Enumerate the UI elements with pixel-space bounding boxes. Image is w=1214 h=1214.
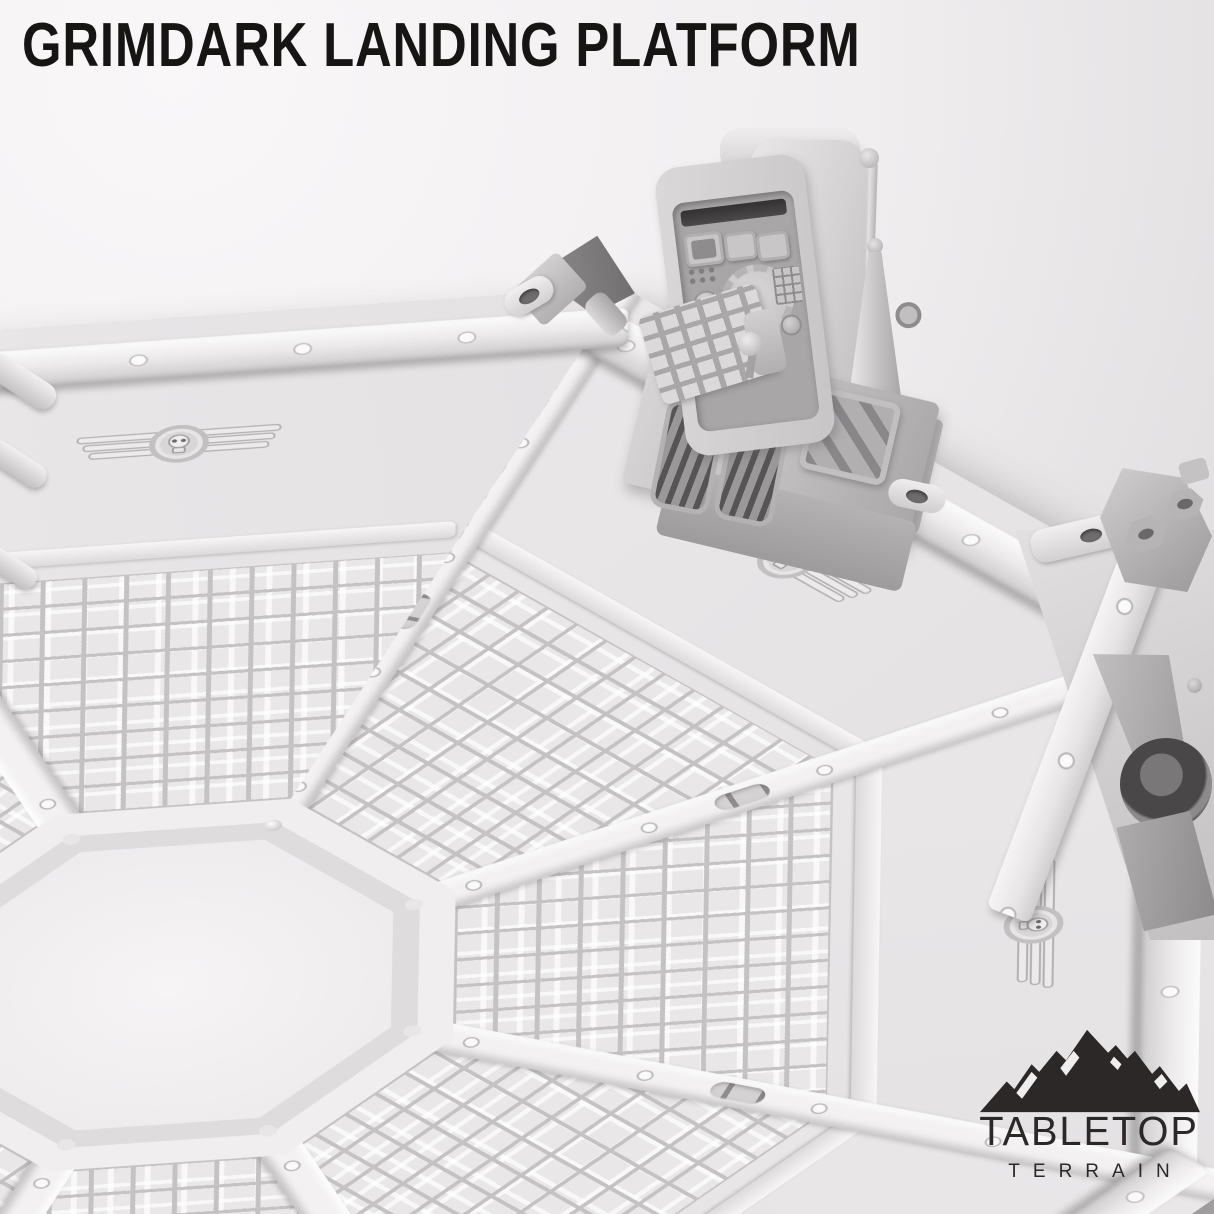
edge-clamp [1030, 460, 1214, 610]
square-button [683, 230, 725, 267]
rod-antenna-tip [859, 148, 879, 168]
bolt [1187, 678, 1202, 693]
numeric-keypad [772, 265, 803, 305]
render-stage: GRIMDARK LANDING PLATFORM TABLETOP TERRA… [0, 0, 1214, 1214]
edge-clamp-lower [1095, 620, 1214, 950]
mountain-icon [973, 1026, 1205, 1114]
clamp-knob [1178, 457, 1211, 485]
clamp-foot [1104, 800, 1214, 942]
indicator-dots [687, 265, 717, 286]
joystick [738, 332, 762, 356]
logo-wordmark: TABLETOP [970, 1110, 1209, 1153]
guide-wheel [1120, 738, 1212, 830]
control-console [620, 110, 950, 580]
brand-logo: TABLETOP TERRAIN [966, 1026, 1212, 1183]
logo-subtext: TERRAIN [966, 1161, 1212, 1183]
square-button [755, 230, 790, 262]
page-title: GRIMDARK LANDING PLATFORM [22, 10, 861, 81]
side-port [894, 301, 923, 330]
square-button [723, 230, 758, 262]
cone-antenna-tip [867, 238, 883, 254]
